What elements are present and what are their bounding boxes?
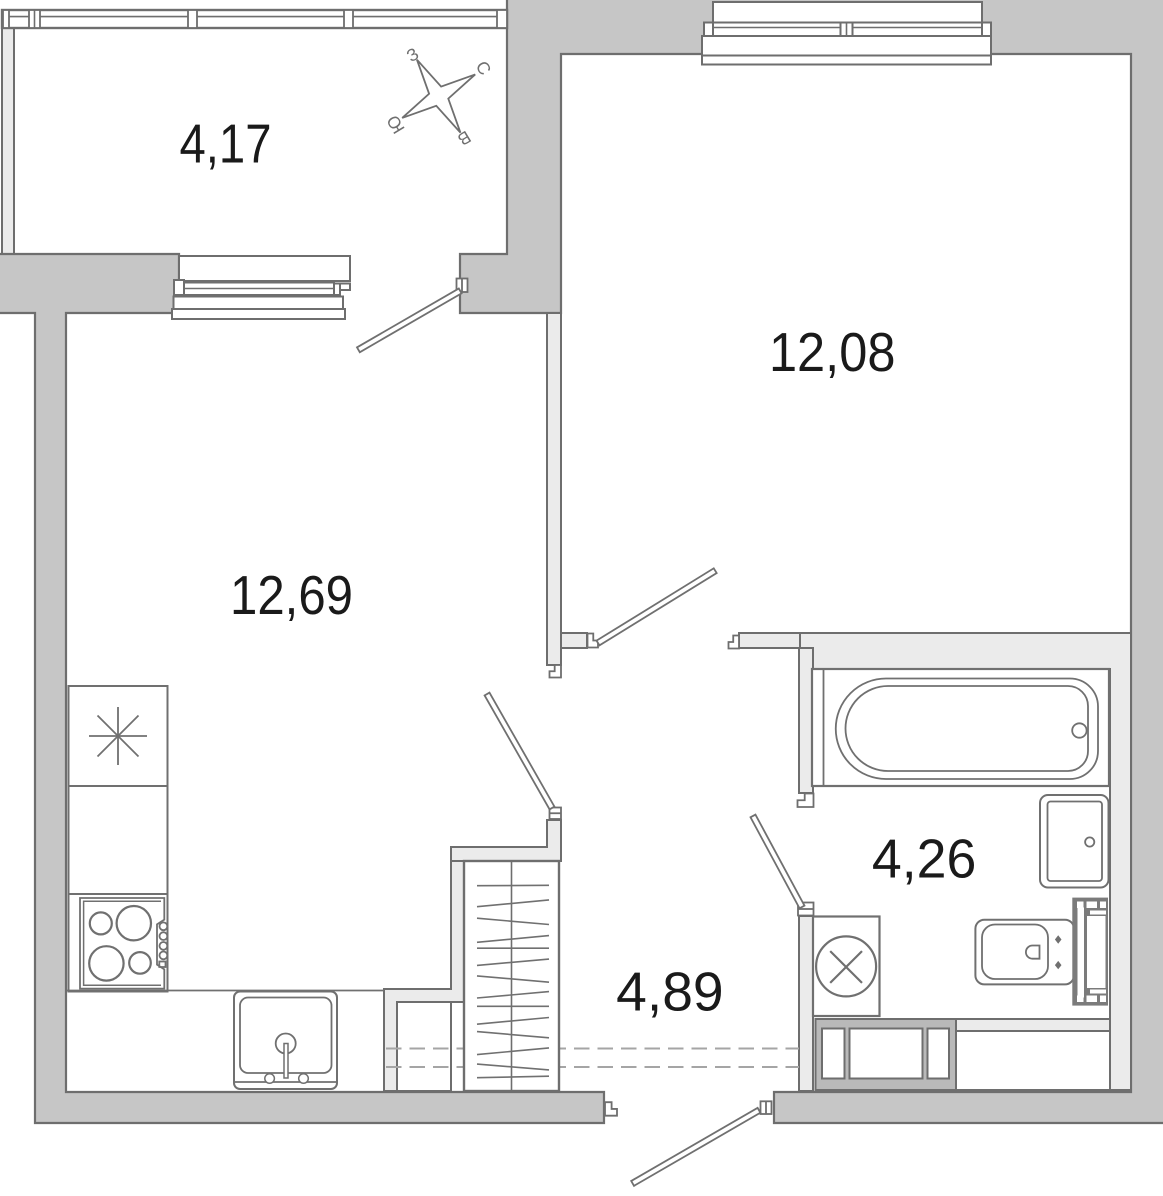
svg-text:4,26: 4,26 (872, 828, 977, 890)
svg-text:4,17: 4,17 (180, 113, 272, 175)
svg-text:4,89: 4,89 (616, 961, 724, 1023)
svg-text:12,08: 12,08 (769, 321, 896, 383)
svg-text:12,69: 12,69 (230, 564, 353, 626)
